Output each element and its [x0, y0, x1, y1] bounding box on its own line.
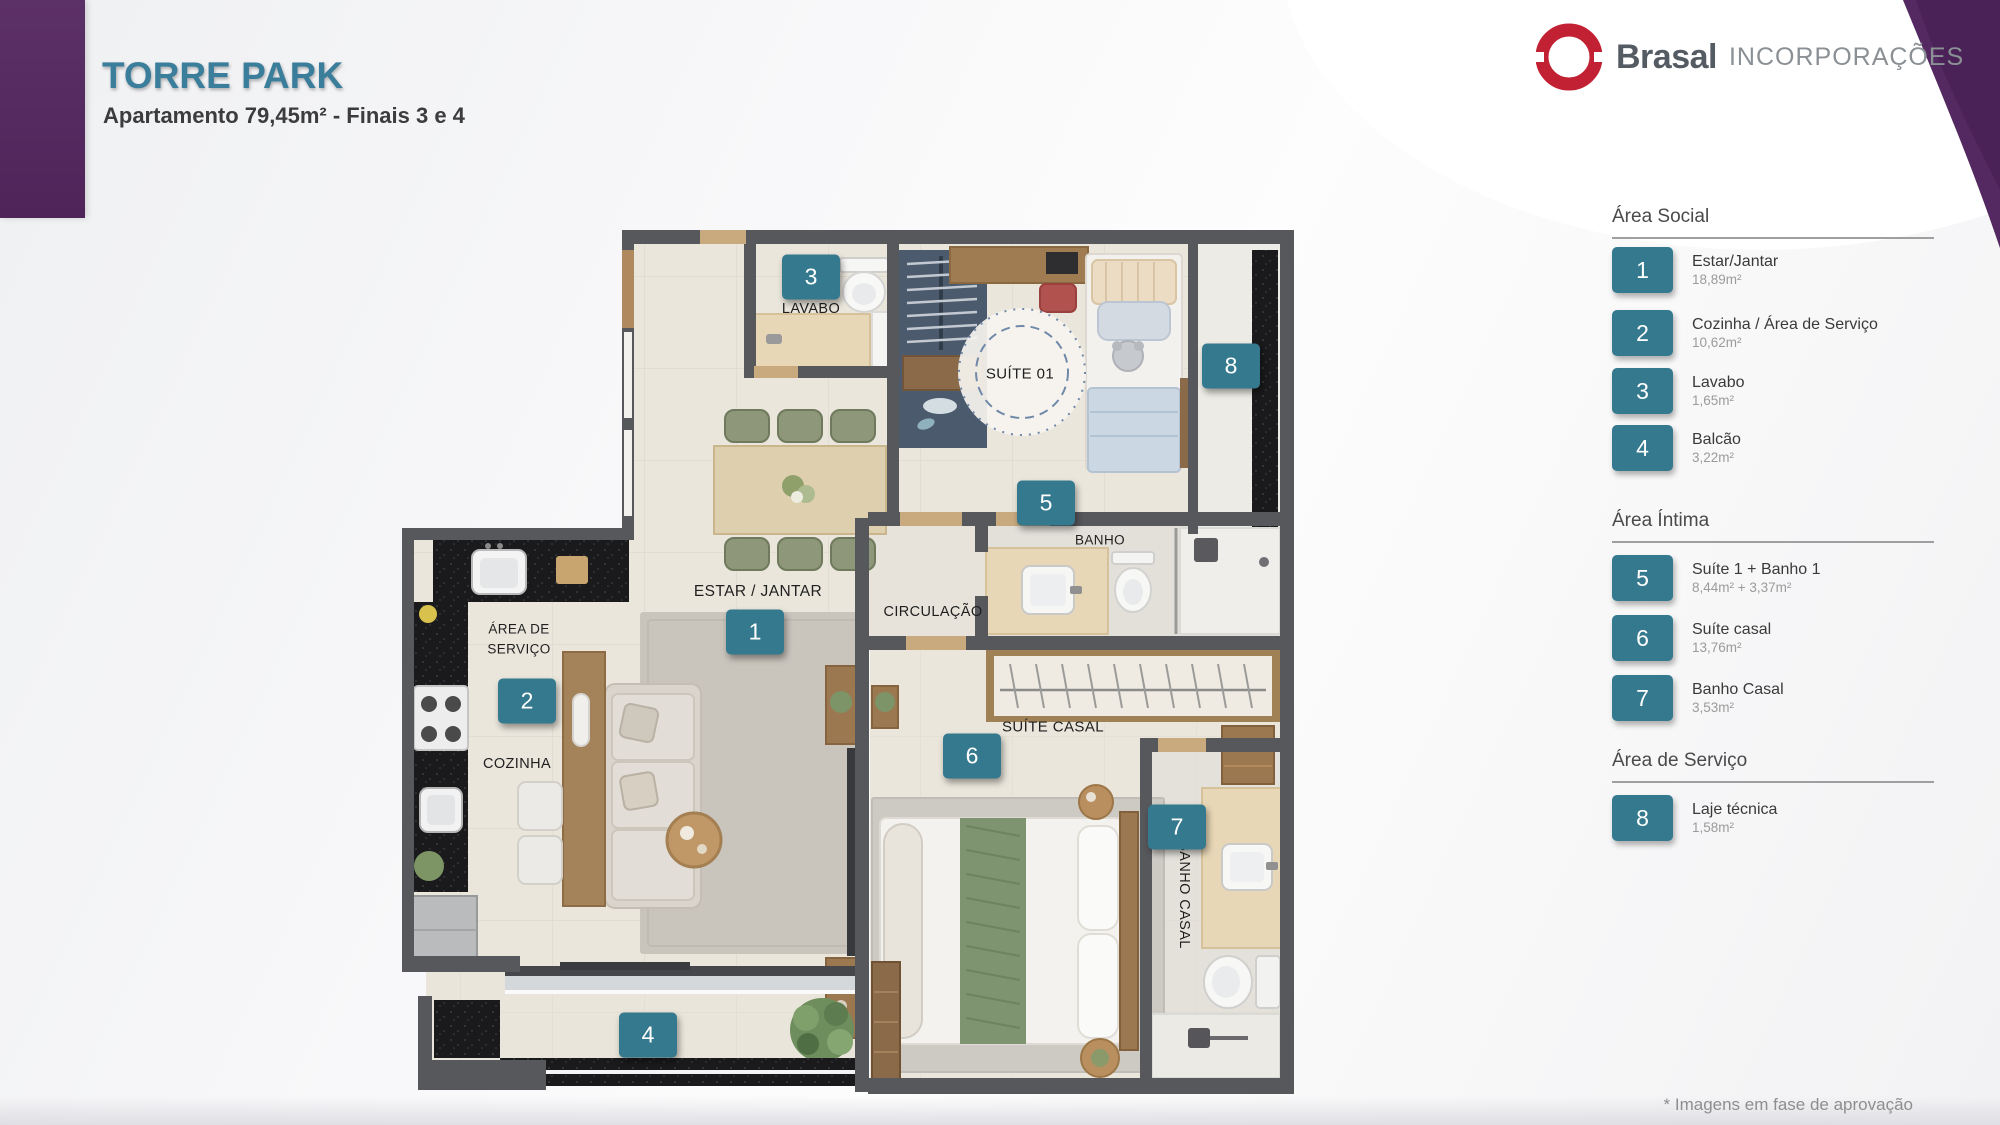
- legend-area-1: 18,89m²: [1692, 272, 1742, 287]
- approval-note: * Imagens em fase de aprovação: [1664, 1095, 1913, 1115]
- suite-casal-wardrobe: [872, 962, 900, 1080]
- legend-num-8: 8: [1612, 795, 1673, 841]
- legend-num-6: 6: [1612, 615, 1673, 661]
- legend-section-title-area-social: Área Social: [1612, 206, 1934, 239]
- single-bed: [1086, 254, 1182, 472]
- legend-section-title-area-servico: Área de Serviço: [1612, 750, 1934, 783]
- legend-label-4: Balcão: [1692, 431, 1741, 449]
- legend-label-3: Lavabo: [1692, 374, 1745, 392]
- suite-casal-closet: [986, 650, 1280, 722]
- legend-num-5: 5: [1612, 555, 1673, 601]
- room-label-suite-casal: SUÍTE CASAL: [1002, 719, 1104, 736]
- legend-area-6: 13,76m²: [1692, 640, 1742, 655]
- room-label-lavabo: LAVABO: [782, 301, 840, 317]
- room-label-suite1: SUÍTE 01: [986, 366, 1054, 383]
- stove: [414, 686, 468, 750]
- legend-section-title-area-intima: Área Íntima: [1612, 510, 1934, 543]
- room-label-cozinha: COZINHA: [483, 756, 551, 772]
- legend-label-6: Suíte casal: [1692, 621, 1771, 639]
- legend-label-7: Banho Casal: [1692, 681, 1784, 699]
- bar-stool: [518, 782, 562, 830]
- plan-marker-4: 4: [619, 1013, 677, 1058]
- banho1-shower: [1180, 528, 1280, 634]
- headboard: [1120, 812, 1138, 1050]
- plan-marker-1: 1: [726, 610, 784, 655]
- bath-shelf: [1222, 726, 1274, 784]
- banho-casal-toilet: [1204, 956, 1280, 1008]
- legend-num-3: 3: [1612, 368, 1673, 414]
- banho-casal-shower: [1152, 1014, 1280, 1078]
- plan-marker-8: 8: [1202, 344, 1260, 389]
- plan-marker-2: 2: [498, 679, 556, 724]
- laje-tecnica: [1198, 244, 1282, 534]
- legend-label-8: Laje técnica: [1692, 801, 1777, 819]
- room-label-circulacao: CIRCULAÇÃO: [883, 604, 982, 620]
- plan-marker-5: 5: [1017, 481, 1075, 526]
- double-bed: [880, 812, 1138, 1050]
- room-label-estar-jantar: ESTAR / JANTAR: [694, 583, 822, 601]
- coffee-table: [667, 813, 721, 867]
- legend-num-4: 4: [1612, 425, 1673, 471]
- legend-area-7: 3,53m²: [1692, 700, 1734, 715]
- legend-area-3: 1,65m²: [1692, 393, 1734, 408]
- plan-marker-6: 6: [943, 734, 1001, 779]
- service-sink: [420, 788, 462, 832]
- room-label-area-de: ÁREA DE: [488, 622, 549, 637]
- legend-label-5: Suíte 1 + Banho 1: [1692, 561, 1821, 579]
- legend-label-2: Cozinha / Área de Serviço: [1692, 316, 1878, 334]
- plan-marker-7: 7: [1148, 805, 1206, 850]
- plan-marker-3: 3: [782, 255, 840, 300]
- room-label-banho-casal: BANHO CASAL: [1176, 841, 1192, 949]
- desk-chair: [1040, 284, 1076, 312]
- sofa: [605, 684, 701, 908]
- room-label-servico: SERVIÇO: [487, 642, 550, 657]
- legend-num-2: 2: [1612, 310, 1673, 356]
- hall-shelf: [872, 686, 898, 728]
- legend-area-5: 8,44m² + 3,37m²: [1692, 580, 1791, 595]
- legend-num-1: 1: [1612, 247, 1673, 293]
- legend-area-2: 10,62m²: [1692, 335, 1742, 350]
- lavabo-toilet: [840, 258, 888, 312]
- bar-stool: [518, 836, 562, 884]
- flower-deco: [419, 605, 437, 623]
- banho1-toilet: [1112, 552, 1154, 612]
- legend-label-1: Estar/Jantar: [1692, 253, 1778, 271]
- cutting-board: [556, 556, 588, 584]
- plant-small: [414, 851, 444, 881]
- legend-area-8: 1,58m²: [1692, 820, 1734, 835]
- fridge: [411, 896, 477, 966]
- sliding-door: [505, 962, 857, 994]
- page: TORRE PARK Apartamento 79,45m² - Finais …: [0, 0, 2000, 1125]
- room-label-banho: BANHO: [1075, 533, 1125, 548]
- legend-area-4: 3,22m²: [1692, 450, 1734, 465]
- balcony-plant: [790, 998, 854, 1062]
- legend-num-7: 7: [1612, 675, 1673, 721]
